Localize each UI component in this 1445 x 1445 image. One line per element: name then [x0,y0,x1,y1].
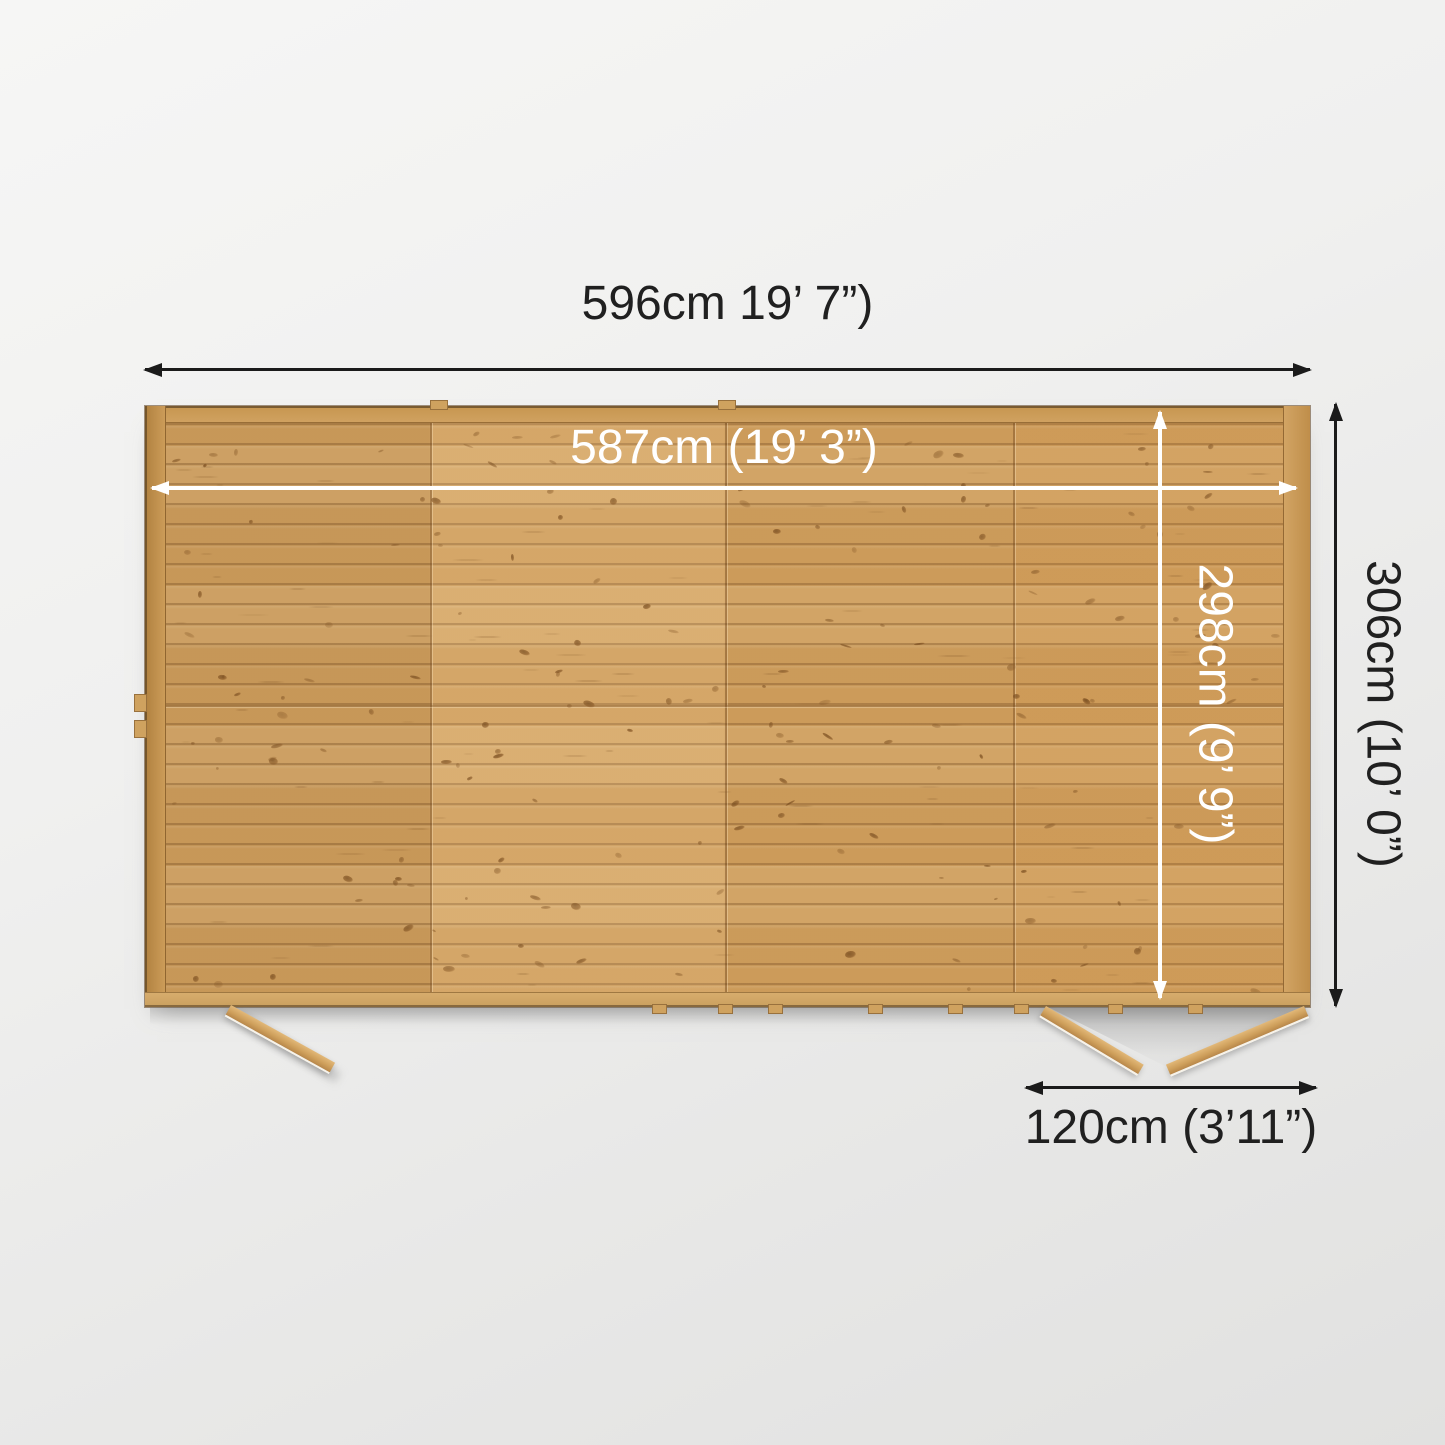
frame-tab [652,1004,667,1014]
wood-knot [1050,979,1057,984]
wood-knot [914,642,925,646]
wood-knot [1030,569,1040,574]
wood-knot [437,543,442,547]
wood-grain-streak [200,553,214,555]
wood-knot [626,728,633,733]
wood-knot [711,685,719,692]
wood-knot [778,813,786,819]
wood-knot [1173,617,1180,623]
wood-knot [901,505,907,513]
wood-grain-streak [522,669,541,671]
arrowhead-left-icon [150,481,169,495]
wood-knot [769,722,774,728]
wood-knot [985,504,990,508]
wood-knot [558,515,563,520]
wood-knot [570,902,581,911]
wood-knot [675,972,683,977]
shed-top-view [145,406,1310,1007]
wood-knot [851,546,859,554]
wood-knot [1006,663,1015,671]
dimension-outer-depth-arrow [1334,404,1337,1006]
wood-knot [192,975,199,982]
wood-knot [609,497,618,506]
wood-knot [1117,900,1122,906]
wood-knot [320,748,328,753]
dimension-inner-depth-arrow [1158,412,1162,998]
wood-knot [779,777,789,785]
wood-grain-streak [294,786,309,788]
wood-grain-streak [717,791,732,793]
wood-knot [234,692,241,697]
wood-knot [530,894,542,901]
wood-knot [1073,790,1078,793]
wood-knot [368,708,375,715]
arrowhead-right-icon [1299,1081,1318,1095]
frame-tab [1188,1004,1203,1014]
wood-knot [402,923,415,933]
wood-knot [184,549,192,555]
frame-tab [134,694,147,712]
frame-tab [1014,1004,1029,1014]
dimension-outer-width-arrow [145,368,1310,371]
wood-texture-layer [145,406,1310,1007]
wood-knot [869,832,880,840]
wood-knot [249,519,253,523]
wood-knot [576,957,588,964]
wood-grain-streak [209,921,228,923]
frame-tab [134,720,147,738]
wood-knot [1028,589,1038,595]
wood-knot [825,619,835,623]
wood-knot [937,766,941,770]
dimension-inner-width-arrow [152,486,1296,490]
wood-knot [642,603,651,609]
arrowhead-left-icon [143,363,162,377]
wood-knot [533,959,545,969]
frame-tab [868,1004,883,1014]
wood-knot [733,824,745,831]
wood-knot [761,684,766,689]
wood-knot [844,950,856,958]
wood-knot [1084,597,1096,606]
wood-knot [213,981,222,989]
arrowhead-down-icon [1329,989,1343,1008]
wood-knot [493,753,505,759]
wood-knot [419,496,426,503]
wood-knot [698,841,703,846]
wood-knot [461,953,471,958]
wood-knot [1082,944,1088,950]
frame-tab [768,1004,783,1014]
wood-grain-streak [181,741,192,743]
wood-grain-streak [918,786,941,788]
wood-knot [355,899,363,903]
shed-edge-right [1283,406,1310,1007]
frame-tab [948,1004,963,1014]
wood-knot [391,544,400,547]
wood-knot [433,956,440,961]
wood-grain-streak [543,633,561,635]
wood-knot [939,877,944,880]
wood-knot [280,696,285,700]
wood-grain-streak [335,853,366,855]
wood-grain-streak [555,654,586,656]
wood-grain-streak [521,531,546,533]
wood-knot [494,867,501,873]
wood-grain-streak [713,954,734,956]
wood-knot [773,529,781,534]
dimension-door-width-label: 120cm (3’11”) [1006,1100,1336,1155]
wood-knot [984,865,991,867]
wood-knot [1127,511,1135,518]
wood-grain-streak [841,610,863,612]
wood-grain-streak [307,945,335,947]
wood-knot [183,631,195,639]
wood-grain-streak [212,576,222,578]
wood-knot [1021,870,1027,874]
wood-knot [342,875,353,884]
frame-tab [718,1004,733,1014]
wood-knot [668,629,679,634]
arrowhead-up-icon [1153,410,1167,429]
wood-grain-streak [174,622,187,624]
wood-knot [1137,946,1143,953]
wood-grain-streak [1131,982,1152,984]
wood-knot [960,496,966,504]
wood-knot [171,801,177,805]
wood-grain-streak [270,957,291,959]
wood-grain-streak [929,823,944,825]
wood-knot [1271,634,1280,639]
wood-grain-streak [806,505,829,507]
arrowhead-right-icon [1279,481,1298,495]
wood-grain-streak [452,559,484,561]
wood-knot [443,966,455,973]
wood-knot [683,698,693,704]
wood-grain-streak [316,480,335,482]
wood-knot [823,732,834,741]
wood-knot [216,767,220,771]
wood-grain-streak [235,709,249,711]
wood-knot [276,711,289,721]
wood-grain-streak [1001,657,1028,659]
wood-grain-streak [1070,891,1088,893]
wood-grain-streak [605,750,614,752]
wood-knot [884,739,894,745]
wood-knot [458,611,463,615]
wood-grain-streak [473,636,502,638]
wood-knot [466,776,473,781]
wood-knot [952,957,962,963]
wood-knot [582,700,595,710]
wood-knot [464,897,468,901]
wood-grain-streak [381,849,412,851]
wood-knot [1174,824,1184,829]
wood-knot [399,856,406,863]
wood-knot [593,578,601,585]
wood-grain-streak [468,639,477,641]
wood-grain-streak [795,823,825,825]
wood-grain-streak [316,542,339,544]
arrowhead-down-icon [1153,981,1167,1000]
wood-knot [270,743,282,749]
wood-grain-streak [432,817,447,819]
wood-knot [441,760,452,764]
wood-grain-streak [1018,787,1039,789]
wood-knot [567,704,572,708]
wood-grain-streak [794,703,827,705]
wood-grain-streak [988,545,1002,547]
wood-knot [1043,822,1055,829]
wood-grain-streak [192,476,219,478]
wood-grain-streak [1018,507,1039,509]
frame-tab [718,400,736,410]
wood-knot [775,732,784,738]
wood-knot [1114,615,1125,622]
wood-knot [432,929,437,933]
wood-knot [1251,678,1260,681]
wood-knot [1187,505,1196,513]
wood-knot [430,497,442,506]
frame-tab [430,400,448,410]
dimension-door-width-arrow [1026,1086,1316,1089]
wood-grain-streak [588,508,606,510]
wood-grain-streak [1105,974,1121,976]
wood-grain-streak [668,577,688,579]
wood-knot [738,498,751,509]
wood-knot [814,524,820,530]
frame-tab [1108,1004,1123,1014]
wood-knot [518,943,524,948]
wood-grain-streak [401,721,415,723]
wood-knot [731,799,742,808]
wood-grain-streak [463,753,475,755]
wood-knot [541,906,551,909]
wood-grain-streak [405,635,433,637]
wood-grain-streak [257,681,286,683]
wood-grain-streak [706,722,726,724]
wood-knot [1204,492,1213,500]
wood-grain-streak [237,614,270,616]
wood-grain-streak [308,606,333,608]
wood-grain-streak [527,984,537,986]
arrowhead-left-icon [1024,1081,1043,1095]
wood-knot [304,678,316,684]
wood-grain-streak [1070,847,1095,849]
wood-knot [665,697,673,706]
wood-knot [614,852,622,860]
wood-knot [532,798,538,803]
wood-grain-streak [788,805,813,807]
wood-knot [214,736,222,743]
wood-knot [716,888,726,896]
wood-grain-streak [762,673,783,675]
wood-knot [270,974,276,980]
wood-grain-streak [475,579,498,581]
wood-knot [434,532,441,538]
wood-knot [979,753,984,759]
wood-knot [840,644,852,650]
wood-knot [1013,693,1021,698]
wood-grain-streak [936,724,963,726]
wood-grain-streak [574,680,603,682]
arrowhead-up-icon [1329,402,1343,421]
dimension-outer-width-label: 596cm 19’ 7”) [145,276,1310,331]
wood-grain-streak [1134,899,1151,901]
wood-grain-streak [406,828,430,830]
wood-knot [994,897,998,900]
wood-grain-streak [1145,817,1153,819]
wood-grain-streak [371,781,384,783]
wood-knot [497,856,505,863]
wood-knot [406,883,414,887]
dimension-inner-depth-label: 298cm (9’ 9”) [1187,564,1242,845]
wood-knot [880,623,886,628]
wood-grain-streak [1167,575,1185,577]
diagram-canvas: 596cm 19’ 7”) 587cm (19’ 3”) 298cm (9’ 9… [0,0,1445,1445]
wood-grain-streak [289,588,307,590]
wood-knot [511,554,515,561]
wood-knot [324,622,333,629]
shed-edge-left [145,406,166,1007]
wood-knot [198,591,202,598]
wood-grain-streak [516,973,530,975]
wood-knot [455,763,460,769]
wood-grain-streak [937,655,970,657]
wood-grain-streak [611,673,635,675]
wood-knot [410,675,421,680]
wood-knot [1016,711,1028,720]
wood-knot [1080,962,1089,967]
wood-knot [518,648,530,657]
wood-knot [1139,524,1146,530]
wood-knot [717,930,723,935]
wood-grain-streak [850,501,872,503]
wood-grain-streak [926,798,939,800]
wood-knot [482,722,489,728]
wood-knot [786,740,794,743]
wood-grain-streak [616,695,640,697]
wood-grain-streak [1046,896,1056,898]
arrowhead-right-icon [1293,363,1312,377]
wood-knot [978,533,987,541]
wood-knot [268,757,278,765]
wood-knot [836,847,845,855]
wood-knot [573,639,582,648]
wood-grain-streak [562,755,588,757]
wood-grain-streak [1174,533,1186,535]
wood-grain-streak [1061,989,1081,991]
dimension-inner-width-label: 587cm (19’ 3”) [152,420,1296,475]
dimension-outer-depth-label: 306cm (10’ 0”) [1355,560,1410,868]
wood-knot [191,742,195,745]
wood-grain-streak [867,511,886,513]
wood-knot [1025,918,1036,925]
